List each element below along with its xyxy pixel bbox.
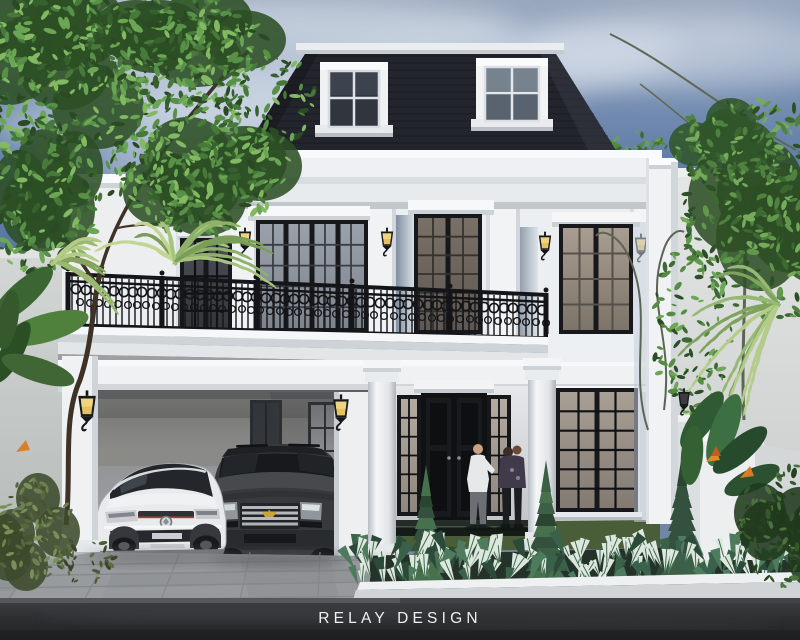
svg-text:RELAY DESIGN: RELAY DESIGN bbox=[318, 610, 482, 627]
